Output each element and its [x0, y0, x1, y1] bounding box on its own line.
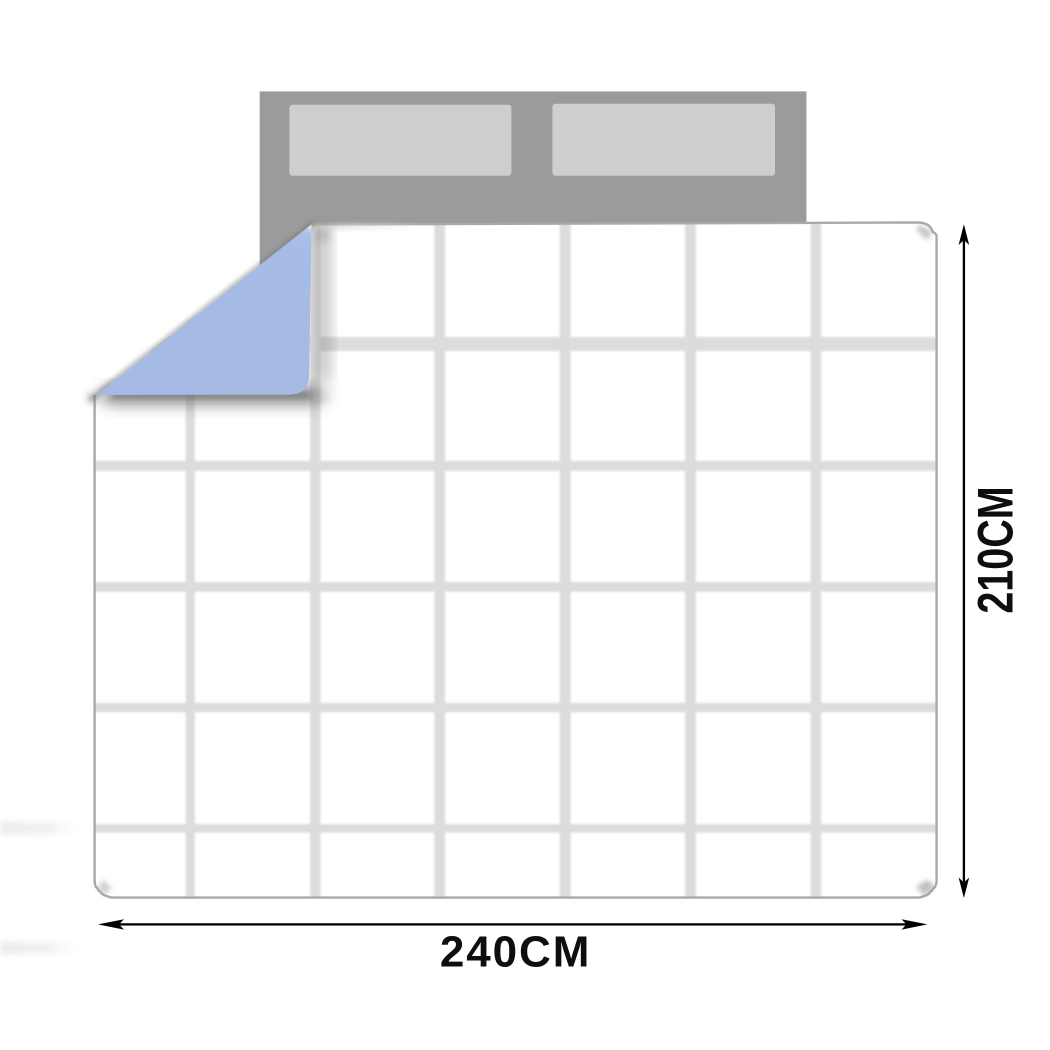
- svg-text:240CM: 240CM: [440, 928, 591, 977]
- svg-text:210CM: 210CM: [967, 486, 1024, 613]
